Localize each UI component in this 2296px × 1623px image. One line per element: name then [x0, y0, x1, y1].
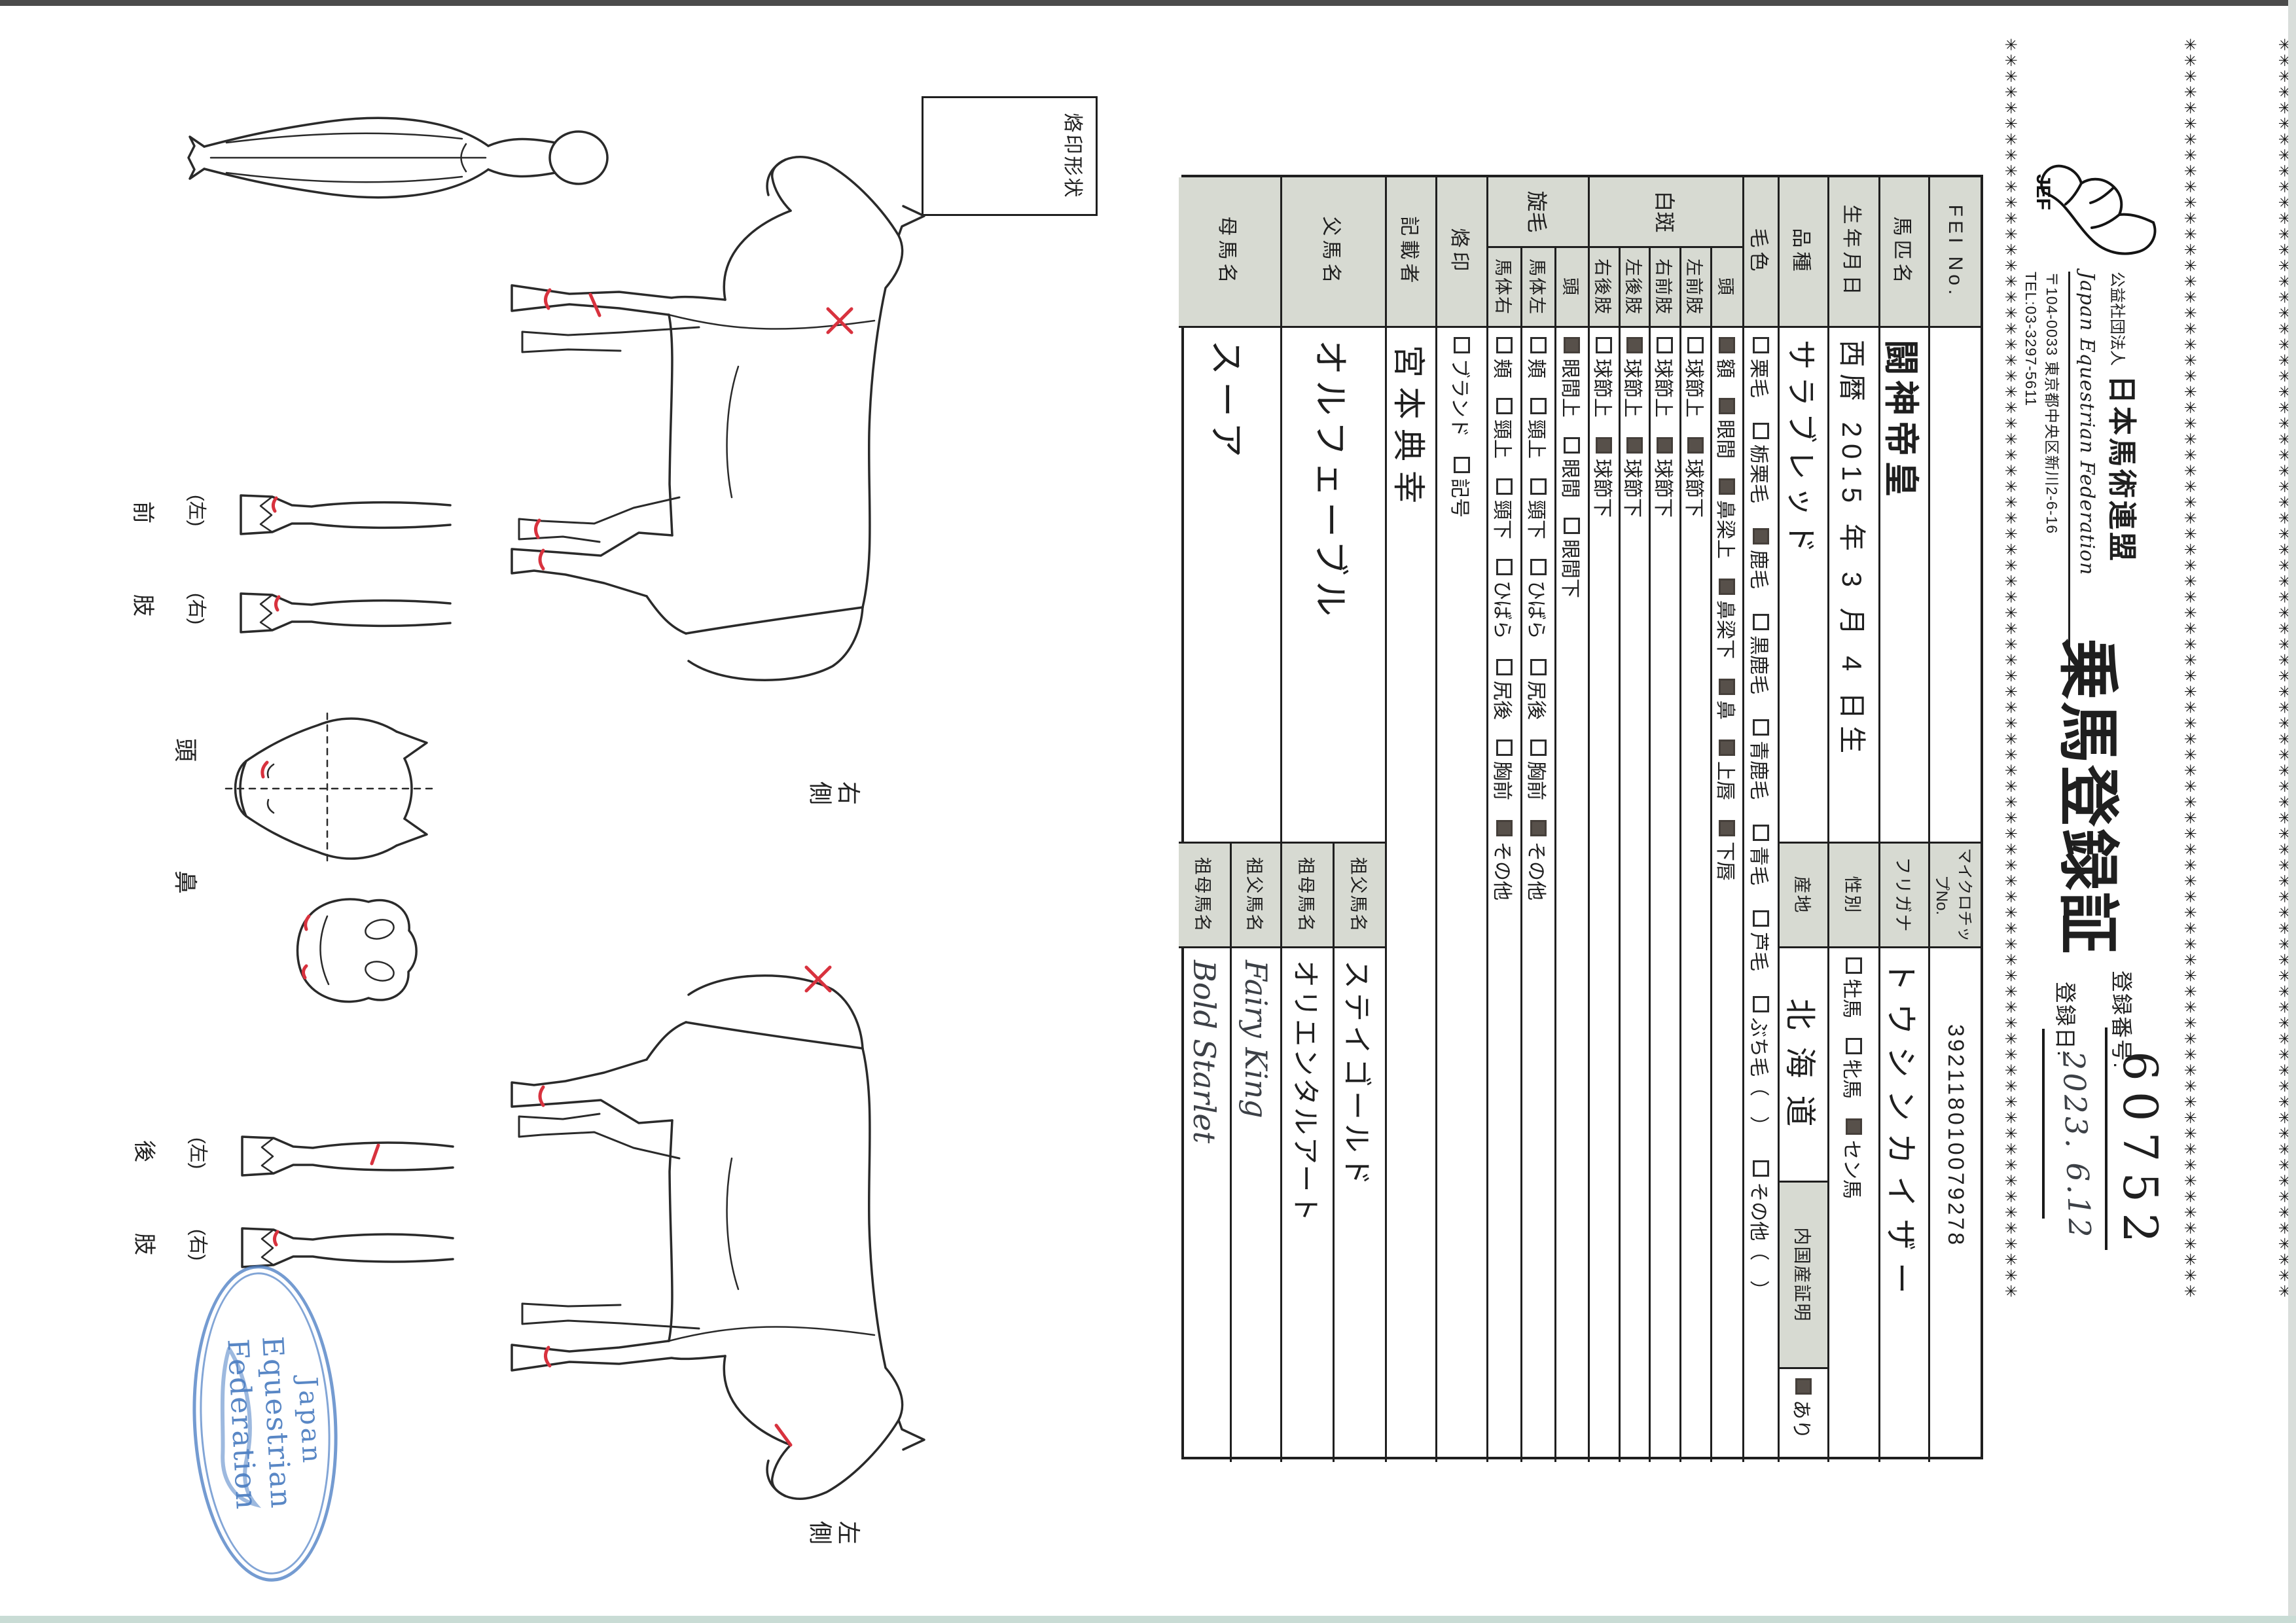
checked-box-icon [1564, 337, 1581, 353]
markings-rf-options: 球節上球節下 [1649, 328, 1679, 1462]
asterisk-border-middle: ✳✳✳✳✳✳✳✳✳✳✳✳✳✳✳✳✳✳✳✳✳✳✳✳✳✳✳✳✳✳✳✳✳✳✳✳✳✳✳✳… [2179, 38, 2199, 1585]
checkbox-label: その他 [1524, 842, 1553, 901]
fei-no-label: FEI No. [1928, 177, 1981, 328]
jef-logo-text: JEF [2034, 174, 2054, 210]
empty-box-icon [1496, 337, 1513, 353]
checkbox-label: 球節下 [1681, 459, 1710, 518]
checkbox-label: 鼻梁下 [1713, 600, 1742, 659]
checkbox-label: 胸前 [1524, 761, 1553, 800]
empty-box-icon [1753, 910, 1769, 927]
whorls-sub-left: 馬体左 [1520, 248, 1554, 328]
checkbox-label: 球節下 [1621, 459, 1649, 518]
checkbox-item: 球節上 [1681, 337, 1710, 418]
checkbox-label: 青毛 [1747, 846, 1776, 885]
checked-box-icon [1530, 820, 1547, 836]
markings-sub-rf: 右前肢 [1649, 248, 1679, 328]
checkbox-label: 黒鹿毛 [1747, 635, 1776, 694]
checkbox-item: 頸上 [1524, 398, 1553, 459]
nose-view-label: 鼻 [170, 870, 204, 895]
checkbox-label: 牡馬 [1840, 979, 1869, 1018]
checkbox-item: 眼間 [1713, 398, 1742, 459]
dam-gsire-value: Fairy King [1230, 948, 1280, 1462]
checked-box-icon [1719, 740, 1736, 756]
empty-box-icon [1753, 825, 1769, 841]
right-view-label: 右側 [806, 780, 863, 808]
recorder-value: 宮本典幸 [1385, 328, 1435, 1462]
checkbox-item: ひばら [1524, 559, 1553, 639]
horse-name-label: 馬匹名 [1878, 177, 1928, 328]
sire-gdam-label: 祖母馬名 [1280, 844, 1333, 948]
checkbox-label: 上唇 [1713, 761, 1742, 800]
dam-value: スーア [1179, 328, 1280, 844]
empty-box-icon [1530, 659, 1547, 675]
sire-gsire-value: ステイゴールド [1333, 948, 1385, 1462]
stamp-swoosh-icon [201, 1340, 275, 1514]
checkbox-item: 頬 [1524, 337, 1553, 378]
empty-box-icon [1496, 398, 1513, 414]
markings-sub-lf: 左前肢 [1679, 248, 1710, 328]
front-right-paren: (右) [185, 593, 212, 624]
red-marks [262, 290, 852, 1445]
checkbox-item: 鼻 [1713, 679, 1742, 720]
horse-left-side-figure [512, 976, 924, 1499]
dam-gdam-label: 祖母馬名 [1179, 844, 1230, 948]
checkbox-label: 芦毛 [1747, 932, 1776, 971]
checkbox-item: 球節上 [1590, 337, 1619, 418]
empty-box-icon [1753, 996, 1769, 1012]
checkbox-item: 栗毛 [1747, 337, 1776, 398]
empty-box-icon [1688, 337, 1704, 353]
checked-box-icon [1719, 478, 1736, 495]
checkbox-item: 芦毛 [1747, 910, 1776, 971]
checked-box-icon [1846, 1118, 1862, 1135]
origin-value: 北海道 [1780, 948, 1827, 1181]
checkbox-item: セン馬 [1840, 1118, 1869, 1199]
hind-left-paren: (左) [186, 1137, 213, 1169]
checked-box-icon [1795, 1378, 1812, 1395]
checkbox-item: 青毛 [1747, 825, 1776, 885]
checkbox-item: 球節下 [1681, 437, 1710, 518]
registration-no-underline [2105, 1027, 2108, 1250]
checked-box-icon [1496, 820, 1513, 836]
checkbox-label: ブランド [1448, 359, 1477, 437]
kana-label: フリガナ [1878, 844, 1928, 948]
brand-label: 烙印 [1435, 177, 1486, 328]
checkbox-item: 胸前 [1490, 740, 1519, 800]
whorls-left-options: 頬頸上頸下ひばら尻後胸前その他 [1520, 328, 1554, 1462]
checkbox-item: 球節下 [1621, 437, 1649, 518]
checkbox-item: 栃栗毛 [1747, 423, 1776, 503]
checkbox-item: 鼻梁下 [1713, 579, 1742, 659]
checkbox-label: ぶち毛（ ） [1747, 1018, 1776, 1135]
federation-name: 日本馬術連盟 [2104, 375, 2145, 563]
empty-box-icon [1496, 559, 1513, 575]
sire-gdam-value: オリエンタルアート [1280, 948, 1333, 1462]
checkbox-label: ひばら [1524, 580, 1553, 639]
checkbox-item: 尻後 [1490, 659, 1519, 720]
horse-id-table: FEI No. マイクロチップNo. 392118010079278 馬匹名 闘… [1181, 175, 1983, 1459]
head-view-label: 頭 [170, 738, 204, 763]
checkbox-item: その他 [1490, 820, 1519, 901]
checkbox-label: 頸下 [1524, 500, 1553, 539]
birthdate-label: 生年月日 [1827, 177, 1878, 328]
checkbox-item: 頬 [1490, 337, 1519, 378]
checkbox-label: 球節下 [1590, 459, 1619, 518]
empty-box-icon [1530, 478, 1547, 495]
empty-box-icon [1454, 457, 1470, 473]
registration-date-underline [2042, 1029, 2045, 1219]
checked-box-icon [1753, 528, 1769, 544]
markings-sub-lh: 左後肢 [1619, 248, 1649, 328]
page-title: 乗馬登録証 [2049, 638, 2138, 955]
checkbox-item: ぶち毛（ ） [1747, 996, 1776, 1135]
empty-box-icon [1753, 1160, 1769, 1177]
sire-gsire-label: 祖父馬名 [1333, 844, 1385, 948]
front-left-paren: (左) [185, 495, 212, 526]
checkbox-label: 栃栗毛 [1747, 444, 1776, 503]
front-limbs-figure [241, 495, 450, 632]
checkbox-item: 鼻梁上 [1713, 478, 1742, 559]
scan-edge-top [2288, 0, 2296, 1623]
scan-canvas: ✳✳✳✳✳✳✳✳✳✳✳✳✳✳✳✳✳✳✳✳✳✳✳✳✳✳✳✳✳✳✳✳✳✳✳✳✳✳✳✳… [0, 0, 2296, 1623]
hind-limb-caption: 後肢 [130, 1140, 162, 1326]
checkbox-item: 球節上 [1651, 337, 1679, 418]
checkbox-item: 下唇 [1713, 820, 1742, 881]
markings-sub-rh: 右後肢 [1588, 248, 1619, 328]
empty-box-icon [1753, 614, 1769, 630]
checked-box-icon [1596, 437, 1613, 454]
checkbox-label: 牝馬 [1840, 1060, 1869, 1099]
checked-box-icon [1719, 679, 1736, 695]
hind-right-paren: (右) [186, 1229, 213, 1260]
asterisk-border-bottom: ✳✳✳✳✳✳✳✳✳✳✳✳✳✳✳✳✳✳✳✳✳✳✳✳✳✳✳✳✳✳✳✳✳✳✳✳✳✳✳✳… [2000, 38, 2020, 1585]
checked-box-icon [1719, 337, 1736, 353]
checkbox-item: 牡馬 [1840, 957, 1869, 1018]
checkbox-item: ブランド [1448, 337, 1477, 437]
checked-box-icon [1688, 437, 1704, 454]
checkbox-item: その他 [1524, 820, 1553, 901]
checked-box-icon [1719, 579, 1736, 595]
checkbox-item: 球節下 [1590, 437, 1619, 518]
horse-head-icon [2041, 166, 2155, 254]
checkbox-label: 鹿毛 [1747, 550, 1776, 589]
checkbox-label: 頸上 [1490, 419, 1519, 459]
fei-no-value [1928, 328, 1981, 844]
microchip-value: 392118010079278 [1928, 948, 1981, 1462]
markings-group-label: 白斑 [1588, 177, 1742, 248]
checkbox-item: 眼間 [1558, 437, 1587, 498]
horse-name-value: 闘神帝皇 [1878, 328, 1928, 844]
checkbox-label: 鼻梁上 [1713, 500, 1742, 559]
checkbox-item: 眼間下 [1558, 518, 1587, 598]
empty-box-icon [1753, 423, 1769, 439]
checkbox-item: 頸下 [1490, 478, 1519, 539]
checkbox-label: 額 [1713, 359, 1742, 378]
empty-box-icon [1530, 398, 1547, 414]
empty-box-icon [1596, 337, 1613, 353]
empty-box-icon [1846, 957, 1862, 974]
federation-address: 〒104-0033 東京都中央区新川2-6-16 [2042, 272, 2064, 690]
checkbox-item: 球節上 [1621, 337, 1649, 418]
markings-lh-options: 球節上球節下 [1619, 328, 1649, 1462]
checkbox-label: 尻後 [1524, 681, 1553, 720]
registration-date-value: 2023. 6.12 [2056, 1050, 2098, 1240]
certificate-page: ✳✳✳✳✳✳✳✳✳✳✳✳✳✳✳✳✳✳✳✳✳✳✳✳✳✳✳✳✳✳✳✳✳✳✳✳✳✳✳✳… [0, 0, 2296, 1623]
checkbox-label: その他（ ） [1747, 1182, 1776, 1300]
checkbox-item: 牝馬 [1840, 1038, 1869, 1099]
empty-box-icon [1530, 740, 1547, 756]
checkbox-label: 球節上 [1621, 359, 1649, 418]
empty-box-icon [1564, 518, 1581, 534]
horse-right-side-figure [512, 157, 924, 680]
sex-label: 性別 [1827, 844, 1878, 948]
markings-sub-head: 頭 [1710, 248, 1742, 328]
whorls-sub-right: 馬体右 [1486, 248, 1520, 328]
checkbox-label: セン馬 [1840, 1140, 1869, 1199]
breed-value: サラブレッド [1778, 328, 1827, 844]
checked-box-icon [1719, 398, 1736, 414]
checkbox-label: 記号 [1448, 478, 1477, 518]
markings-head-options: 額眼間鼻梁上鼻梁下鼻上唇下唇 [1710, 328, 1742, 1462]
checkbox-item: 眼間上 [1558, 337, 1587, 418]
whorls-head-options: 眼間上眼間眼間下 [1554, 328, 1588, 1462]
checkbox-item: 尻後 [1524, 659, 1553, 720]
markings-rh-options: 球節上球節下 [1588, 328, 1619, 1462]
checkbox-label: 眼間下 [1558, 539, 1587, 598]
checkbox-item: 鹿毛 [1747, 528, 1776, 589]
markings-lf-options: 球節上球節下 [1679, 328, 1710, 1462]
domestic-options: あり [1780, 1367, 1827, 1462]
checkbox-item: 球節下 [1651, 437, 1679, 518]
federation-name-en: Japan Equestrian Federation [2075, 272, 2098, 690]
empty-box-icon [1753, 337, 1769, 353]
whorls-group-label: 旋毛 [1486, 177, 1588, 248]
checkbox-item: 記号 [1448, 457, 1477, 518]
checked-box-icon [1626, 437, 1643, 454]
empty-box-icon [1530, 559, 1547, 575]
checkbox-item: 胸前 [1524, 740, 1553, 800]
empty-box-icon [1496, 478, 1513, 495]
empty-box-icon [1564, 437, 1581, 454]
checked-box-icon [1719, 820, 1736, 836]
checkbox-label: 下唇 [1713, 842, 1742, 881]
empty-box-icon [1753, 719, 1769, 736]
domestic-label: 内国産証明 [1780, 1181, 1827, 1367]
checkbox-label: 頸上 [1524, 419, 1553, 459]
horse-top-view-figure [188, 118, 607, 197]
head-reference-cross [224, 713, 432, 864]
brand-options: ブランド記号 [1435, 328, 1486, 1462]
hind-limbs-figure [242, 1137, 453, 1267]
sire-value: オルフェーブル [1280, 328, 1385, 844]
checkbox-label: 青鹿毛 [1747, 741, 1776, 800]
checkbox-label: 栗毛 [1747, 359, 1776, 398]
checkbox-label: 鼻 [1713, 700, 1742, 720]
checkbox-label: 眼間上 [1558, 359, 1587, 418]
registration-no-value: 60752 [2113, 1051, 2168, 1253]
federation-divider [2068, 272, 2070, 690]
front-limb-caption: 前肢 [129, 501, 161, 687]
checkbox-item: 上唇 [1713, 740, 1742, 800]
checkbox-item: 頸下 [1524, 478, 1553, 539]
jef-logo: JEF [2034, 145, 2165, 260]
scan-edge-right [0, 1616, 2296, 1623]
checkbox-label: 胸前 [1490, 761, 1519, 800]
birthdate-value: 西暦 2015 年 3 月 4 日生 [1827, 328, 1878, 844]
sex-options: 牡馬牝馬セン馬 [1827, 948, 1878, 1462]
checkbox-item: 頸上 [1490, 398, 1519, 459]
checked-box-icon [1626, 337, 1643, 353]
checkbox-label: 球節上 [1681, 359, 1710, 418]
left-view-label: 左側 [806, 1520, 863, 1547]
empty-box-icon [1846, 1038, 1862, 1054]
checkbox-label: あり [1789, 1400, 1818, 1439]
checkbox-label: その他 [1490, 842, 1519, 901]
registration-date-label: 登録日: [2051, 982, 2083, 1058]
kana-value: トウシンカイザー [1878, 948, 1928, 1462]
federation-block: 公益社団法人 日本馬術連盟 Japan Equestrian Federatio… [2022, 272, 2145, 690]
recorder-label: 記載者 [1385, 177, 1435, 328]
horse-muzzle-figure [298, 899, 417, 1002]
empty-box-icon [1496, 740, 1513, 756]
checkbox-label: 眼間 [1558, 459, 1587, 498]
checkbox-label: 頸下 [1490, 500, 1519, 539]
checkbox-label: 頬 [1524, 359, 1553, 378]
dam-gsire-label: 祖父馬名 [1230, 844, 1280, 948]
dam-gdam-value: Bold Starlet [1179, 948, 1230, 1462]
checkbox-item: 額 [1713, 337, 1742, 378]
checkbox-label: ひばら [1490, 580, 1519, 639]
checkbox-item: その他（ ） [1747, 1160, 1776, 1300]
checkbox-label: 球節下 [1651, 459, 1679, 518]
sire-label: 父馬名 [1280, 177, 1385, 328]
empty-box-icon [1454, 337, 1470, 353]
empty-box-icon [1530, 337, 1547, 353]
checkbox-label: 球節上 [1590, 359, 1619, 418]
checkbox-label: 尻後 [1490, 681, 1519, 720]
federation-corp-type: 公益社団法人 [2108, 272, 2130, 366]
checkbox-label: 頬 [1490, 359, 1519, 378]
checkbox-item: あり [1789, 1378, 1818, 1439]
coat-options: 栗毛栃栗毛鹿毛黒鹿毛青鹿毛青毛芦毛ぶち毛（ ）その他（ ） [1742, 328, 1778, 1462]
coat-label: 毛色 [1742, 177, 1778, 328]
checkbox-label: 球節上 [1651, 359, 1679, 418]
checkbox-item: 青鹿毛 [1747, 719, 1776, 800]
checked-box-icon [1657, 437, 1674, 454]
scan-edge-left [0, 0, 2296, 6]
whorls-right-options: 頬頸上頸下ひばら尻後胸前その他 [1486, 328, 1520, 1462]
empty-box-icon [1496, 659, 1513, 675]
checkbox-item: 黒鹿毛 [1747, 614, 1776, 694]
checkbox-label: 眼間 [1713, 419, 1742, 459]
microchip-label: マイクロチップNo. [1928, 844, 1981, 948]
federation-tel: TEL:03-3297-5611 [2022, 272, 2039, 690]
empty-box-icon [1657, 337, 1674, 353]
origin-label: 産地 [1778, 844, 1827, 948]
checkbox-item: ひばら [1490, 559, 1519, 639]
whorls-sub-head: 頭 [1554, 248, 1588, 328]
dam-label: 母馬名 [1179, 177, 1280, 328]
breed-label: 品種 [1778, 177, 1827, 328]
